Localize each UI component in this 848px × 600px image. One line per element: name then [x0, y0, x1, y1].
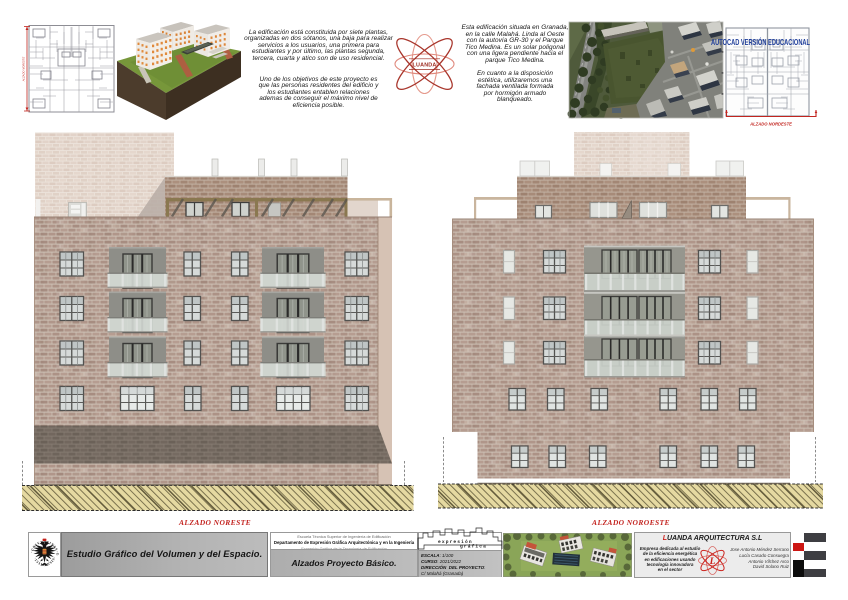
svg-text:gráfica: gráfica: [460, 544, 487, 550]
svg-text:ALZADO NORESTE: ALZADO NORESTE: [22, 57, 26, 83]
svg-text:L: L: [709, 557, 716, 567]
svg-text:AUTOCAD VERSIÓN EDUCACIONAL: AUTOCAD VERSIÓN EDUCACIONAL: [711, 36, 810, 47]
svg-text:LUANDA: LUANDA: [413, 62, 437, 68]
svg-text:ALZADO NORDESTE: ALZADO NORDESTE: [749, 122, 792, 127]
